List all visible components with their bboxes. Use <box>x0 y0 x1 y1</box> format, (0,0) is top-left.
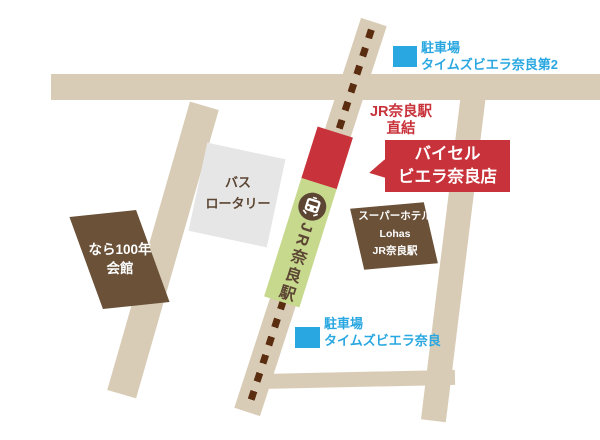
parking-marker-icon-bottom <box>295 327 320 348</box>
super-hotel-label-line2: Lohas <box>340 226 450 244</box>
direct-access-line2: 直結 <box>350 121 452 138</box>
super-hotel-label-line3: JR奈良駅 <box>340 243 450 261</box>
parking-bottom-line2: タイムズビエラ奈良 <box>324 333 441 350</box>
bus-rotary-label-line1: バス <box>178 172 298 193</box>
store-callout-line2: ビエラ奈良店 <box>385 166 510 189</box>
super-hotel-label: スーパーホテル Lohas JR奈良駅 <box>340 208 450 261</box>
callout-arrow-icon <box>367 159 389 182</box>
bus-rotary-label: バス ロータリー <box>178 172 298 214</box>
train-icon <box>294 189 329 224</box>
parking-marker-icon-top <box>393 46 417 67</box>
parking-label-top: 駐車場 タイムズビエラ奈良第2 <box>421 40 558 73</box>
station-name-label: JR奈良駅 <box>270 219 318 306</box>
parking-bottom-line1: 駐車場 <box>324 316 441 333</box>
bus-rotary-label-line2: ロータリー <box>178 193 298 214</box>
nara-100th-hall-label-line2: 会館 <box>64 259 176 278</box>
parking-top-line2: タイムズビエラ奈良第2 <box>421 57 558 74</box>
parking-top-line1: 駐車場 <box>421 40 558 57</box>
nara-100th-hall-label: なら100年 会館 <box>64 240 176 278</box>
nara-100th-hall-label-line1: なら100年 <box>64 240 176 259</box>
access-map: JR奈良駅 バス ロータリー スーパーホテル Lohas JR奈良駅 なら100… <box>0 0 600 440</box>
station-direct-access-label: JR奈良駅 直結 <box>350 104 452 137</box>
store-callout-line1: バイセル <box>385 143 510 166</box>
direct-access-line1: JR奈良駅 <box>350 104 452 121</box>
parking-label-bottom: 駐車場 タイムズビエラ奈良 <box>324 316 441 349</box>
road-horizontal-top <box>51 74 600 100</box>
super-hotel-label-line1: スーパーホテル <box>340 208 450 226</box>
store-callout: バイセル ビエラ奈良店 <box>385 140 510 192</box>
